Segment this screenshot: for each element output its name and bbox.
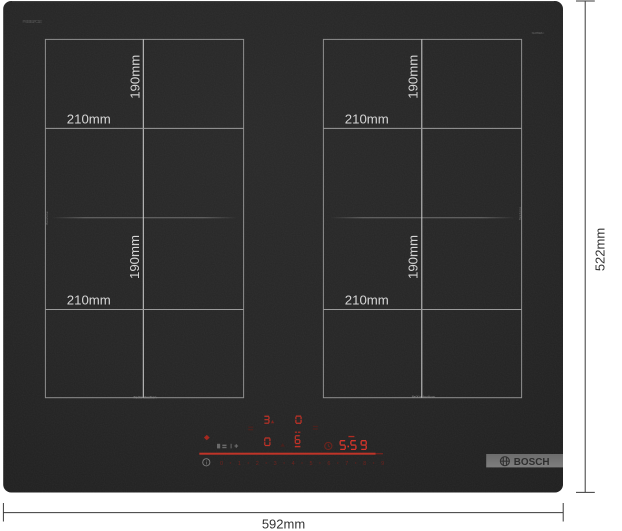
svg-text:2: 2 — [256, 461, 259, 467]
svg-text:4: 4 — [292, 461, 295, 467]
svg-text:190mm: 190mm — [127, 55, 142, 99]
svg-text:592mm: 592mm — [262, 517, 305, 531]
svg-text:BOSCH: BOSCH — [514, 457, 550, 468]
svg-text:190mm: 190mm — [405, 235, 420, 279]
svg-text:flexZone: flexZone — [45, 211, 49, 224]
svg-text:210mm: 210mm — [67, 112, 111, 127]
svg-text:6: 6 — [327, 461, 330, 467]
svg-text:fleXinduction: fleXinduction — [134, 395, 157, 399]
svg-text:7: 7 — [345, 461, 348, 467]
svg-text:8: 8 — [363, 461, 366, 467]
svg-text:210mm: 210mm — [67, 293, 111, 308]
svg-text:fleXinduction: fleXinduction — [412, 395, 435, 399]
svg-text:190mm: 190mm — [405, 55, 420, 99]
svg-text:210mm: 210mm — [345, 293, 389, 308]
svg-text:0: 0 — [220, 461, 223, 467]
svg-text:PXE651FC1E: PXE651FC1E — [23, 19, 43, 24]
svg-text:190mm: 190mm — [127, 235, 142, 279]
svg-text:5: 5 — [309, 461, 312, 467]
svg-text:3: 3 — [274, 461, 277, 467]
svg-text:SCHOTT CERAN: SCHOTT CERAN — [532, 31, 544, 35]
svg-text:210mm: 210mm — [345, 112, 389, 127]
svg-text:i: i — [206, 461, 207, 467]
svg-text:flexZone: flexZone — [518, 207, 522, 220]
svg-text:1: 1 — [238, 461, 241, 467]
svg-text:9: 9 — [381, 461, 384, 467]
svg-text:522mm: 522mm — [593, 228, 608, 271]
